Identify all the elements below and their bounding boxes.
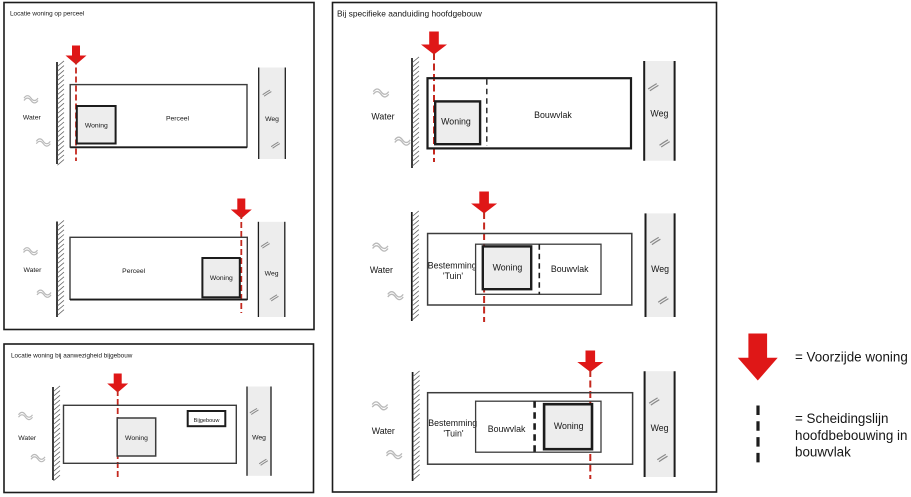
svg-text:Weg: Weg: [265, 270, 279, 277]
svg-text:hoofdbebouwing in: hoofdbebouwing in: [795, 428, 907, 443]
svg-text:Bijgebouw: Bijgebouw: [194, 418, 221, 424]
svg-text:Weg: Weg: [650, 108, 668, 118]
svg-text:Woning: Woning: [554, 421, 584, 431]
svg-text:Perceel: Perceel: [166, 115, 190, 122]
svg-text:Weg: Weg: [651, 264, 669, 274]
svg-text:Woning: Woning: [493, 263, 523, 273]
svg-text:= Voorzijde woning: = Voorzijde woning: [795, 350, 908, 365]
svg-text:Water: Water: [372, 426, 395, 436]
svg-text:Water: Water: [23, 115, 42, 122]
svg-text:Woning: Woning: [210, 275, 233, 282]
svg-text:Woning: Woning: [125, 435, 148, 442]
svg-text:Bouwvlak: Bouwvlak: [551, 264, 589, 274]
svg-text:Weg: Weg: [651, 423, 669, 433]
svg-text:= Scheidingslijn: = Scheidingslijn: [795, 411, 888, 426]
svg-text:Locatie woning bij aanwezighei: Locatie woning bij aanwezigheid bijgebou…: [11, 353, 133, 360]
svg-text:Weg: Weg: [252, 435, 266, 442]
svg-text:Weg: Weg: [265, 116, 279, 123]
svg-text:Woning: Woning: [85, 123, 108, 130]
svg-text:'Tuin': 'Tuin': [443, 428, 463, 438]
svg-text:Perceel: Perceel: [122, 268, 146, 275]
svg-text:Water: Water: [18, 435, 37, 442]
svg-text:Water: Water: [370, 265, 393, 275]
svg-text:Bouwvlak: Bouwvlak: [534, 110, 572, 120]
svg-text:Woning: Woning: [441, 116, 471, 126]
svg-text:'Tuin': 'Tuin': [443, 271, 463, 281]
svg-text:Water: Water: [371, 111, 394, 121]
svg-text:Locatie woning op perceel: Locatie woning op perceel: [10, 11, 84, 18]
svg-text:Bestemming: Bestemming: [428, 260, 477, 270]
svg-text:Bij specifieke aanduiding hoof: Bij specifieke aanduiding hoofdgebouw: [337, 8, 483, 18]
svg-text:bouwvlak: bouwvlak: [795, 444, 851, 459]
svg-text:Bestemming: Bestemming: [428, 418, 477, 428]
svg-text:Bouwvlak: Bouwvlak: [488, 424, 526, 434]
svg-text:Water: Water: [23, 267, 42, 274]
